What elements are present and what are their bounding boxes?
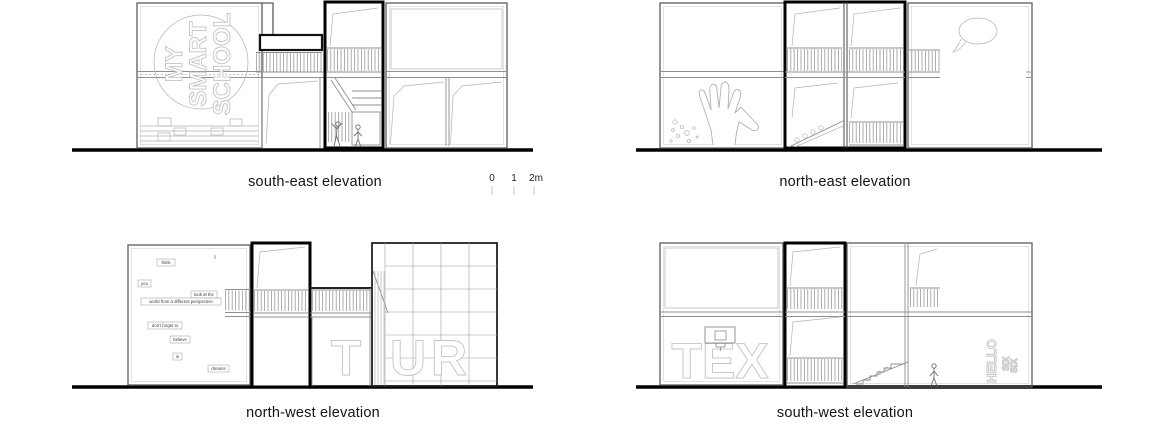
elevations-line-art: MY SMART SCHOOL: [0, 0, 1160, 429]
south-west-elevation-drawing: TEX: [636, 243, 1102, 389]
svg-text:think: think: [161, 260, 171, 265]
title-south-west-elevation: south-west elevation: [777, 405, 913, 421]
svg-text:2m: 2m: [529, 173, 543, 184]
svg-text:don't forget to: don't forget to: [152, 323, 179, 328]
svg-text:U: U: [390, 330, 426, 386]
svg-text:you: you: [141, 281, 149, 286]
svg-text:HELLO: HELLO: [984, 339, 999, 383]
north-east-elevation-drawing: [636, 2, 1102, 150]
svg-text:R: R: [431, 330, 467, 386]
title-north-west-elevation: north-west elevation: [246, 405, 380, 421]
quote-graffiti: think you look at the world from a diffe…: [138, 259, 229, 372]
elevation-drawing-sheet: MY SMART SCHOOL: [0, 0, 1160, 429]
svg-text:SCHOOL: SCHOOL: [209, 13, 236, 116]
scale-bar: 0 1 2m: [489, 173, 543, 195]
svg-text:1: 1: [511, 173, 517, 184]
svg-text:0: 0: [489, 173, 495, 184]
svg-text:SIX: SIX: [1009, 358, 1019, 373]
svg-text:SMART: SMART: [185, 21, 212, 107]
person-figure-icon: [930, 364, 938, 386]
svg-text:look at the: look at the: [194, 292, 214, 297]
stair: [853, 362, 908, 384]
classroom-furniture: [140, 118, 258, 141]
svg-text:in: in: [176, 354, 180, 359]
hand-icon: [699, 82, 758, 145]
south-east-elevation-drawing: MY SMART SCHOOL: [72, 2, 533, 150]
north-west-elevation-drawing: think you look at the world from a diffe…: [72, 243, 533, 387]
title-south-east-elevation: south-east elevation: [248, 174, 382, 190]
svg-text:dreams: dreams: [211, 366, 225, 371]
svg-text:believe: believe: [173, 337, 187, 342]
stair-tower: [252, 243, 310, 387]
title-north-east-elevation: north-east elevation: [779, 174, 910, 190]
speech-bubble-icon: [953, 18, 997, 52]
svg-text:MY: MY: [161, 46, 188, 82]
tur-graffiti: T U R: [331, 330, 467, 386]
my-smart-school-graffiti: MY SMART SCHOOL: [161, 13, 236, 116]
bubbles-icon: [670, 120, 698, 143]
hello-graffiti: HELLO SIX SIX: [984, 339, 1019, 383]
svg-text:world from a different perspec: world from a different perspective: [149, 299, 213, 304]
svg-text:T: T: [331, 330, 362, 386]
